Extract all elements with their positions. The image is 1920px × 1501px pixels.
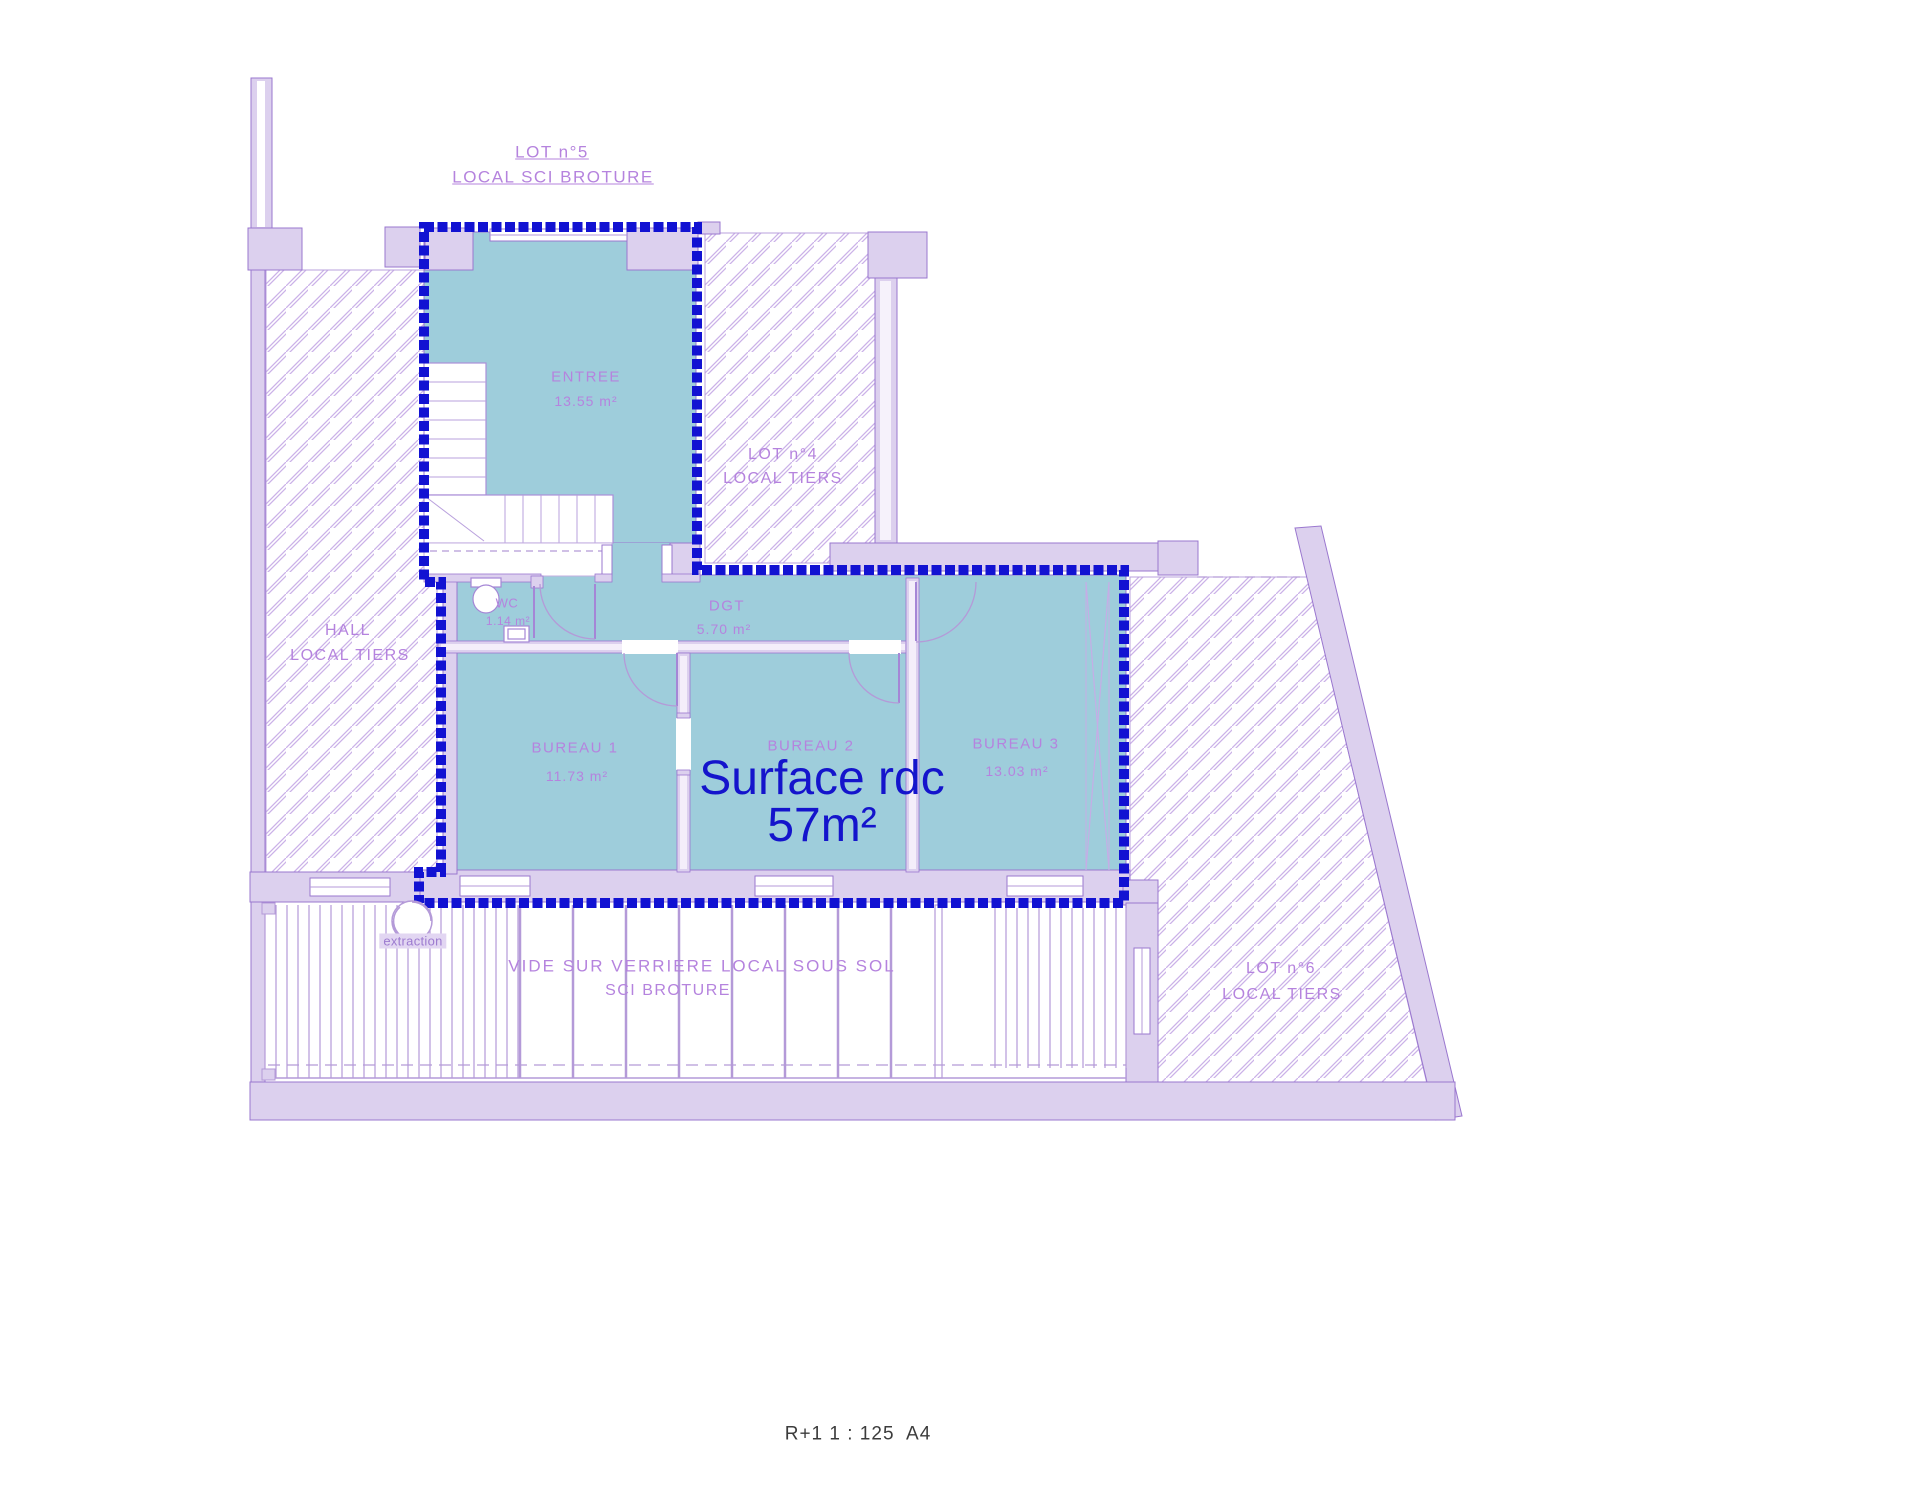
sink-icon [504,626,529,642]
extraction-label: extraction [379,934,446,949]
surface-note-line1: Surface rdc [699,755,944,803]
floor-plan-drawing [0,0,1920,1501]
railing-left [265,905,518,1078]
room-area-bureau1: 11.73 m² [546,769,608,783]
lot6-subtitle: LOCAL TIERS [1222,987,1342,1003]
room-label-dgt: DGT [709,599,745,614]
lot4-subtitle: LOCAL TIERS [723,471,843,487]
railing-right [995,908,1126,1068]
room-label-wc: WC [496,597,519,610]
hatch-hall-local-tiers [266,270,437,872]
room-area-bureau3: 13.03 m² [985,764,1048,778]
room-area-entree: 13.55 m² [554,394,617,408]
room-label-bureau1: BUREAU 1 [531,741,618,756]
room-area-wc: 1.14 m² [486,615,530,627]
room-label-bureau3: BUREAU 3 [972,737,1059,752]
hall-subtitle: LOCAL TIERS [290,648,410,664]
lot6-title: LOT n°6 [1246,961,1316,977]
lot5-title: LOT n°5 [515,144,589,161]
hall-title: HALL [325,623,371,639]
vide-note-line2: SCI BROTURE [605,983,731,999]
hatch-lot4 [705,233,875,563]
room-label-entree: ENTREE [551,370,621,385]
surface-note-line2: 57m² [767,802,876,850]
lot5-subtitle: LOCAL SCI BROTURE [452,169,654,186]
drawing-caption: R+1 1 : 125 A4 [785,1425,932,1444]
lot4-title: LOT n°4 [748,447,818,463]
vide-note-line1: VIDE SUR VERRIERE LOCAL SOUS SOL [508,958,895,975]
room-area-dgt: 5.70 m² [697,622,751,636]
floor-plan-page: LOT n°5 LOCAL SCI BROTURE LOT n°4 LOCAL … [0,0,1920,1501]
